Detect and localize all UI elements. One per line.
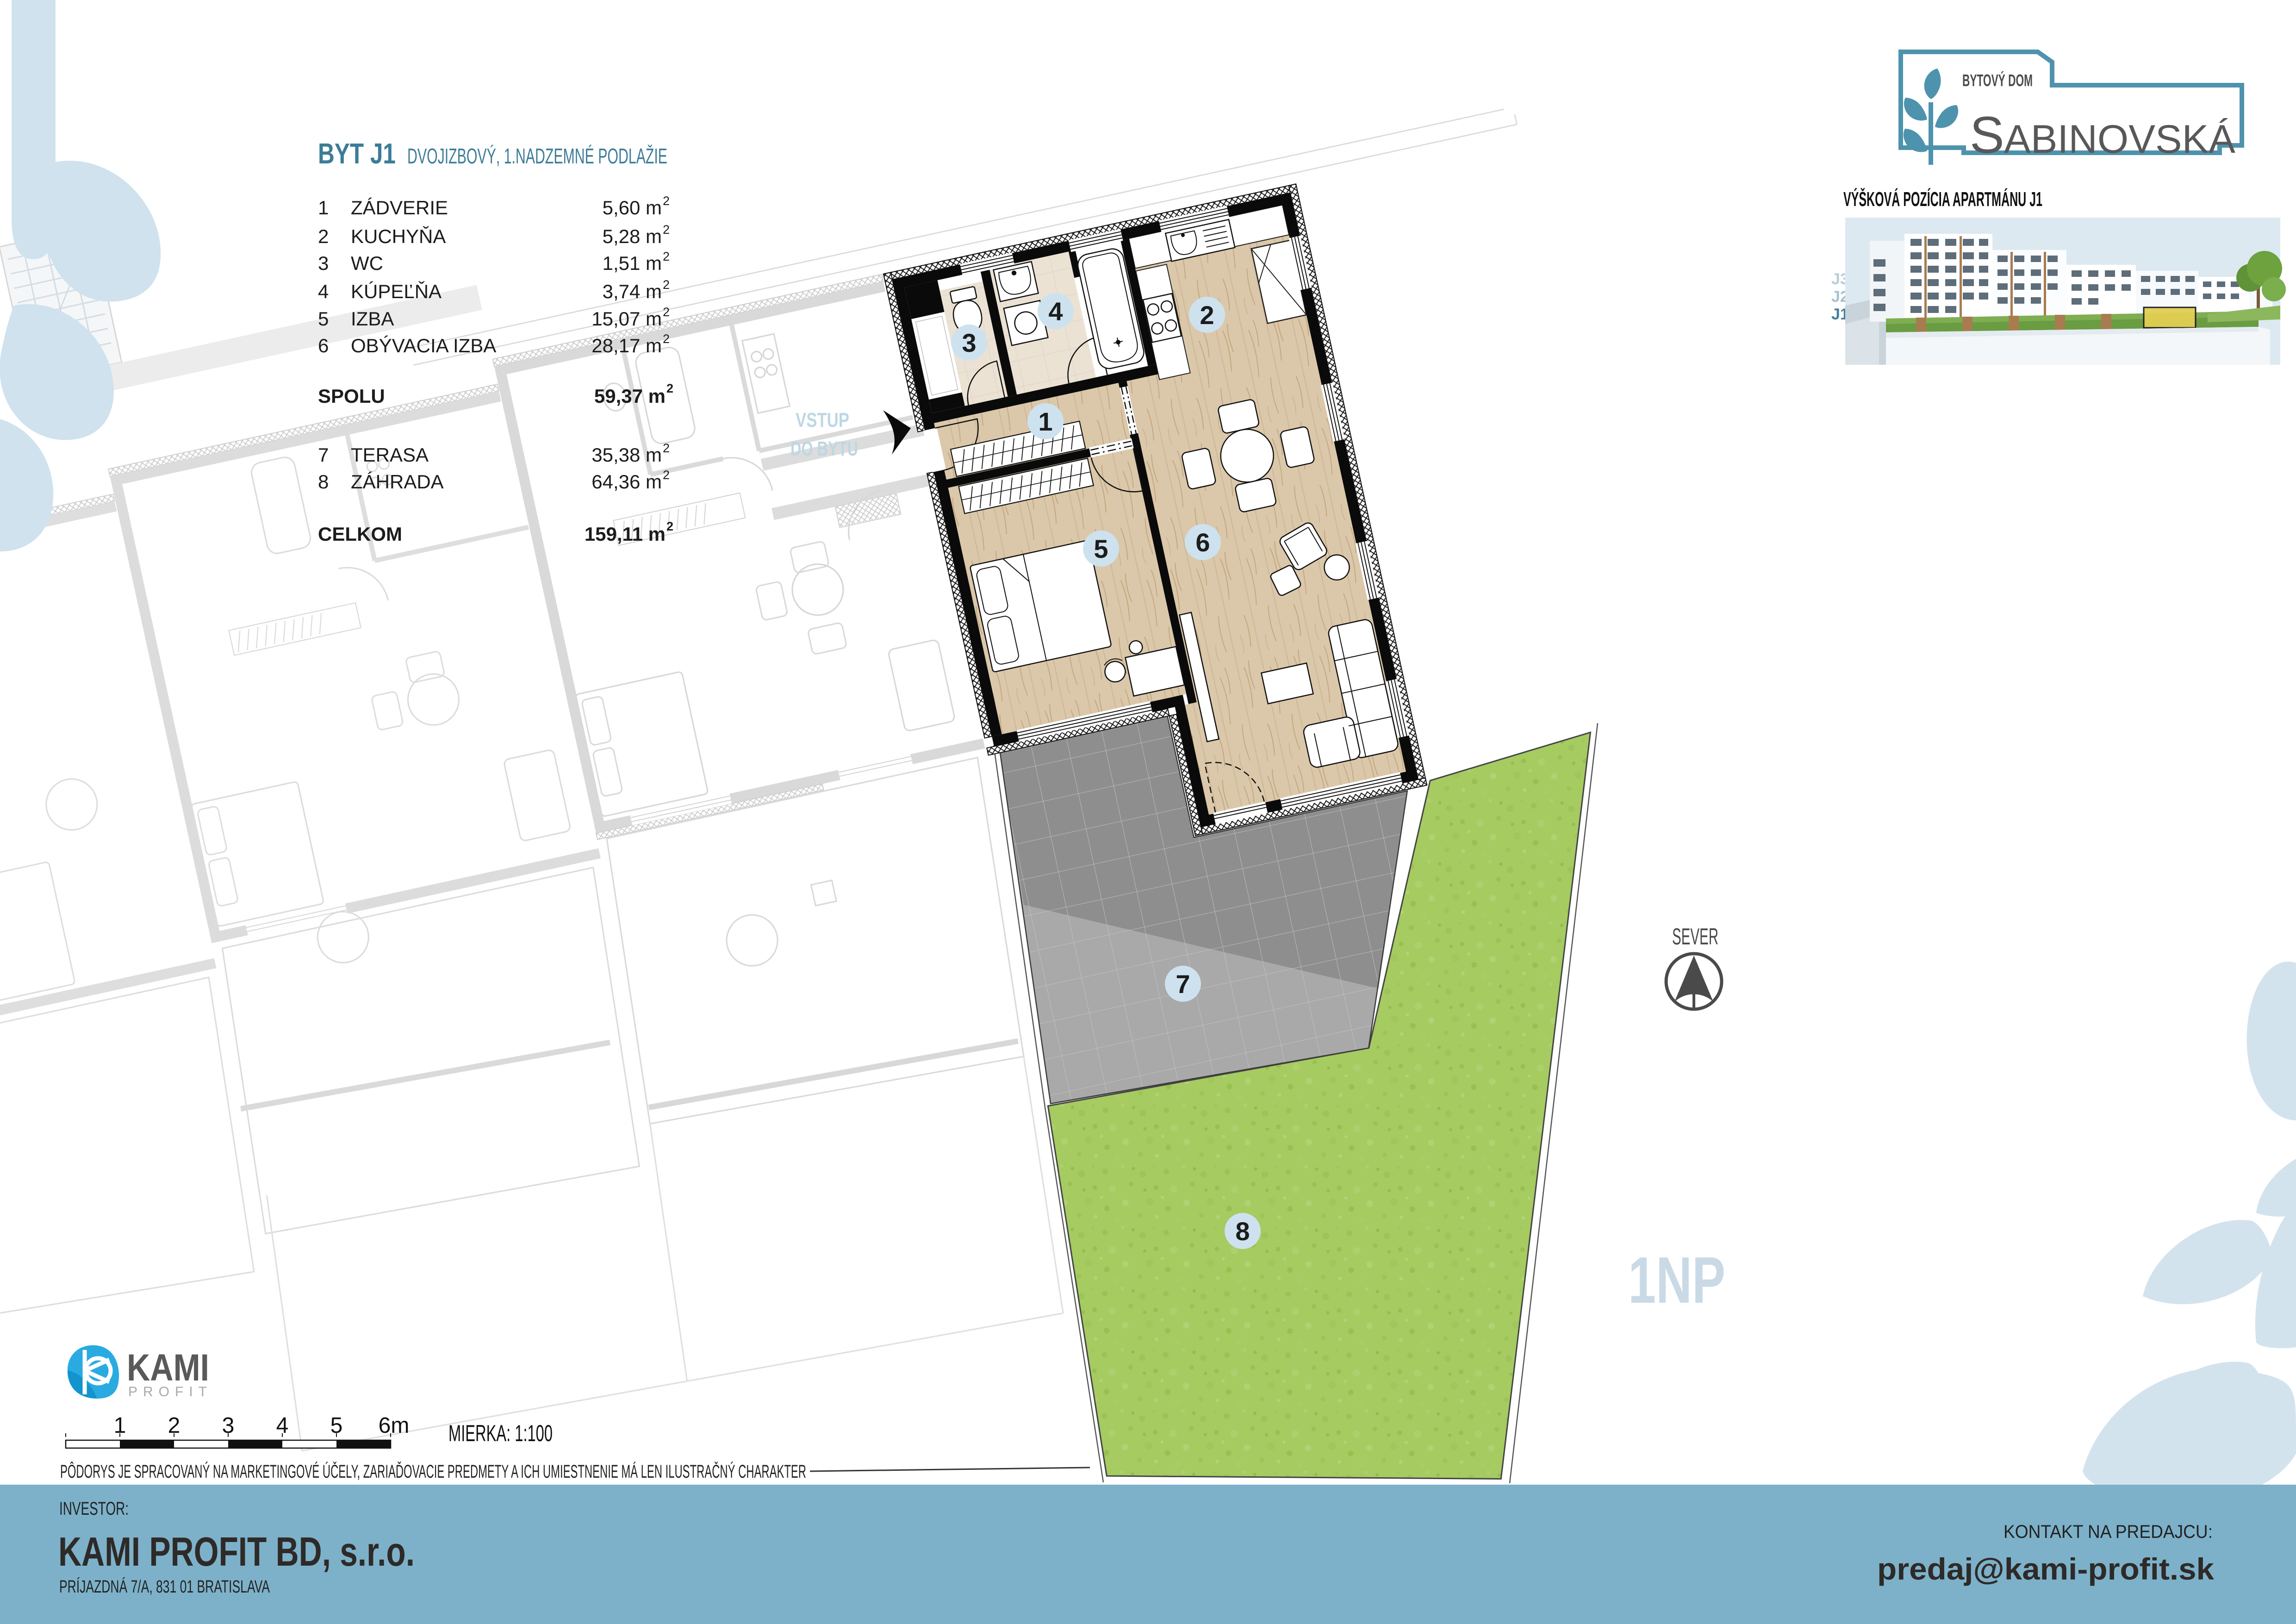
svg-text:8: 8 — [318, 471, 329, 493]
svg-text:2: 2 — [663, 194, 670, 208]
svg-text:64,36 m: 64,36 m — [591, 471, 662, 493]
svg-text:2: 2 — [663, 468, 670, 482]
svg-text:8: 8 — [1235, 1217, 1250, 1246]
svg-text:CELKOM: CELKOM — [318, 523, 402, 545]
svg-text:PÔDORYS JE SPRACOVANÝ NA MARKE: PÔDORYS JE SPRACOVANÝ NA MARKETINGOVÉ ÚČ… — [60, 1461, 806, 1482]
svg-text:7: 7 — [318, 444, 329, 466]
svg-text:2: 2 — [666, 381, 673, 395]
svg-text:KONTAKT NA PREDAJCU:: KONTAKT NA PREDAJCU: — [2004, 1522, 2213, 1542]
svg-text:ZÁDVERIE: ZÁDVERIE — [351, 197, 448, 219]
svg-text:PROFIT: PROFIT — [128, 1384, 212, 1399]
svg-text:KUCHYŇA: KUCHYŇA — [351, 225, 446, 247]
svg-text:2: 2 — [666, 519, 673, 533]
svg-text:DO BYTU: DO BYTU — [790, 437, 858, 460]
svg-text:4: 4 — [318, 281, 329, 302]
svg-text:6: 6 — [318, 335, 329, 356]
svg-text:KAMI PROFIT BD, s.r.o.: KAMI PROFIT BD, s.r.o. — [58, 1529, 415, 1574]
svg-text:159,11 m: 159,11 m — [585, 523, 666, 545]
svg-text:2: 2 — [663, 305, 670, 319]
svg-text:IZBA: IZBA — [351, 308, 394, 330]
svg-text:3: 3 — [962, 328, 976, 357]
svg-text:5,28 m: 5,28 m — [603, 225, 662, 247]
svg-text:15,07 m: 15,07 m — [591, 308, 662, 330]
svg-text:BYT J1: BYT J1 — [318, 138, 396, 170]
svg-text:1NP: 1NP — [1628, 1243, 1725, 1317]
svg-text:2: 2 — [663, 278, 670, 292]
svg-text:2: 2 — [318, 225, 329, 247]
svg-text:6m: 6m — [379, 1413, 410, 1438]
svg-text:ABINOVSKÁ: ABINOVSKÁ — [2004, 117, 2236, 162]
svg-text:28,17 m: 28,17 m — [591, 335, 662, 356]
svg-text:4: 4 — [1048, 297, 1063, 326]
svg-text:OBÝVACIA IZBA: OBÝVACIA IZBA — [351, 335, 496, 356]
svg-text:SEVER: SEVER — [1672, 924, 1718, 949]
svg-text:PRÍJAZDNÁ 7/A, 831 01 BRATISLA: PRÍJAZDNÁ 7/A, 831 01 BRATISLAVA — [59, 1577, 270, 1597]
svg-text:2: 2 — [663, 441, 670, 455]
svg-text:2: 2 — [1200, 300, 1214, 330]
svg-text:KÚPEĽŇA: KÚPEĽŇA — [351, 281, 442, 302]
svg-text:DVOJIZBOVÝ, 1.NADZEMNÉ PODLAŽI: DVOJIZBOVÝ, 1.NADZEMNÉ PODLAŽIE — [407, 144, 667, 168]
svg-text:BYTOVÝ DOM: BYTOVÝ DOM — [1962, 71, 2033, 90]
svg-text:INVESTOR:: INVESTOR: — [59, 1499, 129, 1519]
svg-text:1: 1 — [1038, 407, 1052, 436]
svg-text:1: 1 — [318, 197, 329, 219]
svg-text:5: 5 — [318, 308, 329, 330]
svg-text:TERASA: TERASA — [351, 444, 429, 466]
svg-text:WC: WC — [351, 252, 383, 274]
svg-text:2: 2 — [663, 223, 670, 237]
svg-text:1,51 m: 1,51 m — [603, 252, 662, 274]
svg-text:6: 6 — [1195, 528, 1210, 557]
svg-text:2: 2 — [663, 250, 670, 263]
svg-text:35,38 m: 35,38 m — [591, 444, 662, 466]
svg-text:predaj@kami-profit.sk: predaj@kami-profit.sk — [1877, 1552, 2214, 1586]
svg-text:2: 2 — [663, 332, 670, 346]
svg-text:KAMI: KAMI — [127, 1347, 209, 1389]
svg-text:3: 3 — [318, 252, 329, 274]
svg-text:VSTUP: VSTUP — [796, 409, 849, 431]
svg-text:59,37 m: 59,37 m — [594, 385, 666, 407]
svg-text:MIERKA: 1:100: MIERKA: 1:100 — [448, 1420, 553, 1446]
svg-text:ZÁHRADA: ZÁHRADA — [351, 471, 444, 493]
svg-text:5: 5 — [1094, 534, 1108, 563]
svg-text:SPOLU: SPOLU — [318, 385, 385, 407]
svg-text:3,74 m: 3,74 m — [603, 281, 662, 302]
svg-text:VÝŠKOVÁ POZÍCIA APARTMÁNU J1: VÝŠKOVÁ POZÍCIA APARTMÁNU J1 — [1843, 187, 2042, 211]
svg-text:5,60 m: 5,60 m — [603, 197, 662, 219]
svg-text:7: 7 — [1176, 969, 1190, 999]
svg-text:S: S — [1970, 106, 2004, 164]
